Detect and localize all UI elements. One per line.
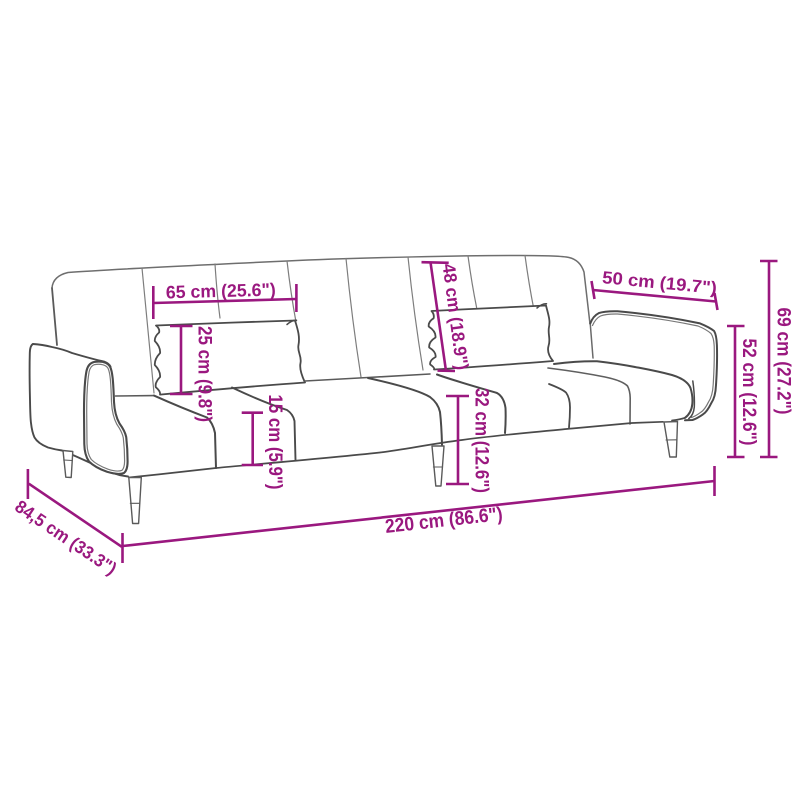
svg-text:65 cm (25.6"): 65 cm (25.6") [166, 280, 276, 303]
svg-text:69 cm (27.2"): 69 cm (27.2") [773, 308, 794, 415]
svg-text:25 cm (9.8"): 25 cm (9.8") [194, 326, 215, 422]
svg-text:32 cm (12.6"): 32 cm (12.6") [471, 388, 492, 493]
svg-text:52 cm (12.6"): 52 cm (12.6") [738, 339, 759, 446]
svg-text:15 cm (5.9"): 15 cm (5.9") [264, 395, 285, 490]
